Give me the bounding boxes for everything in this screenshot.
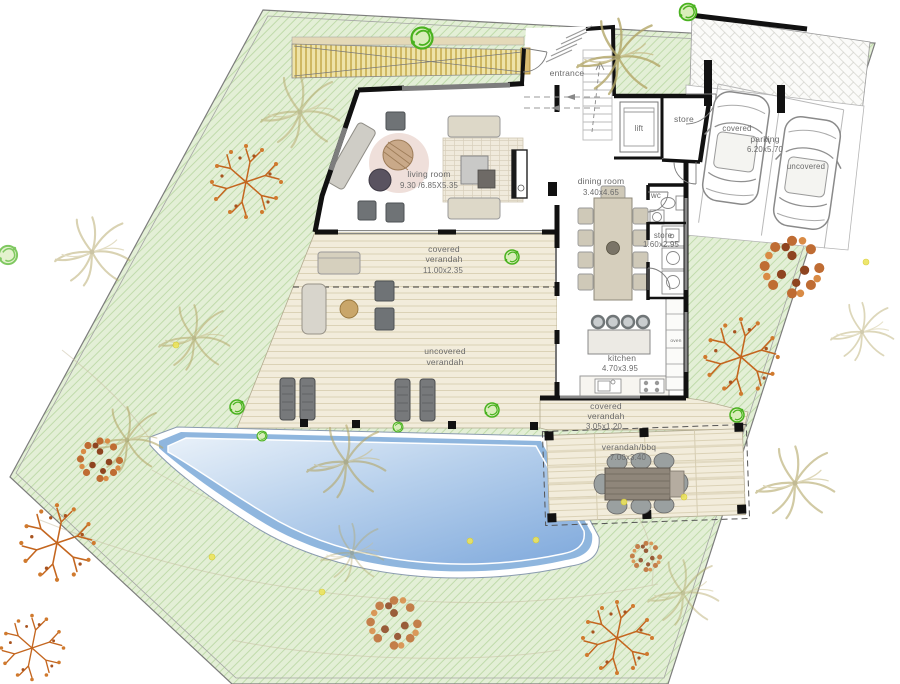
sofa-top — [448, 116, 500, 137]
deck-chair-1 — [375, 281, 394, 301]
verandah-bbq-label: verandah/bbq — [602, 442, 656, 452]
uncovered-verandah-label-1: uncovered — [424, 346, 466, 356]
kitchen-label: kitchen — [608, 353, 636, 363]
store-upper-label: store — [674, 114, 694, 124]
living-room-label: living room — [407, 169, 450, 179]
toilet-bowl — [661, 198, 675, 209]
sofa-bottom — [448, 198, 500, 219]
table-centerpiece — [607, 242, 620, 255]
green-bush — [411, 28, 432, 49]
verandah-bench — [318, 252, 360, 274]
covered-verandah-rear-label-2: verandah — [587, 411, 624, 421]
armchair-top — [386, 112, 405, 130]
green-bush — [230, 400, 244, 414]
green-bush — [485, 403, 499, 417]
covered-verandah-dims: 11.00x2.35 — [423, 266, 463, 275]
covered-verandah-rear-label-1: covered — [590, 401, 622, 411]
deck-chair-2 — [375, 308, 394, 330]
toilet-tank — [676, 196, 684, 210]
wc-label: wc — [650, 191, 661, 200]
store-lower-label: store — [654, 231, 672, 240]
floor-plan-page: entrance lift store living room 9.30 /6.… — [0, 0, 900, 684]
dining-room-dims: 3.40x4.65 — [583, 188, 620, 197]
armchair-bottom-right — [386, 203, 404, 222]
bbq-table — [605, 468, 670, 500]
parking-covered-label: covered — [722, 124, 751, 133]
sun-lounger-light — [302, 284, 326, 334]
parking-uncovered-label: uncovered — [787, 162, 825, 171]
green-bush — [0, 246, 17, 264]
flower — [209, 554, 215, 560]
cooktop — [640, 379, 664, 393]
covered-verandah-label-1: covered — [428, 244, 460, 254]
flower — [863, 259, 869, 265]
flower — [319, 589, 325, 595]
covered-verandah-label-2: verandah — [425, 254, 462, 264]
oven-label: oven — [670, 339, 681, 344]
wc-basin — [653, 213, 662, 222]
green-bush — [679, 4, 696, 21]
bbq-dining-set — [594, 453, 688, 514]
dining-room-label: dining room — [578, 176, 625, 186]
tall-units — [666, 298, 686, 390]
store-lower-dims: 1.60x2.95 — [643, 240, 680, 249]
green-bush — [505, 250, 519, 264]
uncovered-verandah-label-2: verandah — [426, 357, 463, 367]
green-bush — [393, 422, 403, 432]
kitchen-island — [588, 330, 650, 354]
flower — [467, 538, 473, 544]
lift-label: lift — [635, 124, 644, 133]
covered-verandah-rear-dims: 3.05x1.20 — [586, 422, 623, 431]
bbq-table-extension — [670, 471, 684, 497]
side-table — [478, 170, 495, 188]
floor-plan-canvas: entrance lift store living room 9.30 /6.… — [0, 0, 900, 684]
entrance-label: entrance — [550, 68, 585, 78]
verandah-bbq-dims: 7.00x3.40 — [610, 453, 647, 462]
dark-pouf — [369, 169, 391, 191]
armchair-bottom-left — [358, 201, 376, 220]
parking-dims: 6.20x5.70 — [747, 145, 784, 154]
flower — [533, 537, 539, 543]
parking-label: parking — [750, 134, 779, 144]
flower — [173, 342, 179, 348]
living-room-dims: 9.30 /6.85X5.35 — [400, 181, 459, 190]
green-bush — [257, 431, 267, 441]
flower — [621, 499, 627, 505]
flower — [681, 494, 687, 500]
green-bush — [730, 408, 744, 422]
round-side-table — [340, 300, 358, 318]
kitchen-dims: 4.70x3.95 — [602, 364, 639, 373]
